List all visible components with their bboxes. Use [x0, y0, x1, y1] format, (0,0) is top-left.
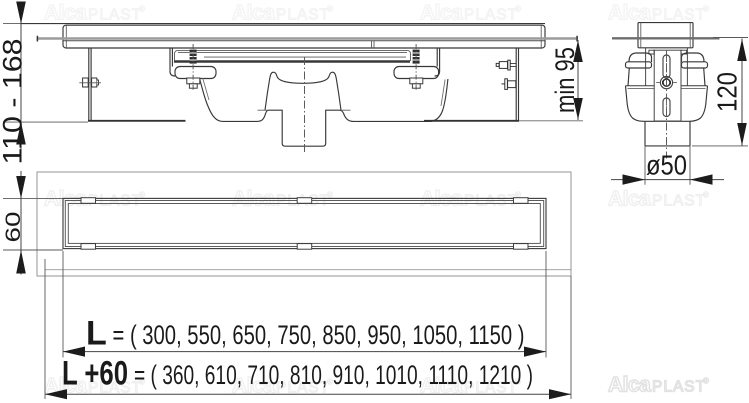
svg-text:®: ® — [703, 377, 709, 386]
svg-text:PLAST: PLAST — [652, 379, 706, 396]
svg-text:min 95: min 95 — [550, 47, 580, 113]
svg-text:L +60: L +60 — [62, 355, 128, 393]
svg-text:= ( 300, 550, 650, 750, 850, 9: = ( 300, 550, 650, 750, 850, 950, 1050, … — [113, 320, 525, 350]
svg-text:60: 60 — [1, 211, 25, 242]
svg-text:120: 120 — [712, 72, 743, 112]
svg-text:ø50: ø50 — [646, 150, 687, 181]
svg-text:= ( 360, 610, 710, 810, 910, 1: = ( 360, 610, 710, 810, 910, 1010, 1110,… — [134, 360, 533, 390]
svg-text:Alca: Alca — [608, 374, 651, 397]
svg-text:110 - 168: 110 - 168 — [0, 39, 28, 165]
svg-text:L: L — [86, 315, 107, 353]
